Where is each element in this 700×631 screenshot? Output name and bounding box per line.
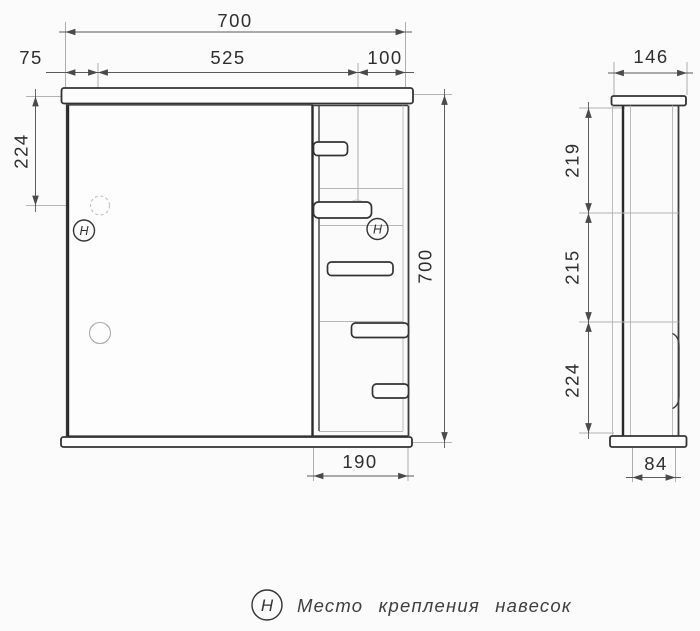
- top-panel: [62, 88, 414, 104]
- dim-label-middle-section: 215: [562, 249, 583, 284]
- side-view: 146 219 215 224 84: [562, 46, 694, 482]
- dim-label-total-width: 700: [217, 10, 252, 31]
- legend-hinge-symbol: Н: [261, 596, 274, 615]
- dim-label-shelf-bottom-width: 190: [342, 451, 377, 472]
- dim-label-door-width: 525: [210, 47, 245, 68]
- mirror-door: [67, 105, 313, 436]
- side-bottom-panel: [610, 436, 687, 447]
- bottom-panel: [61, 437, 412, 447]
- dim-label-shelf-width: 100: [367, 47, 402, 68]
- dim-label-hinge-offset: 224: [11, 133, 32, 168]
- dim-label-depth: 146: [633, 46, 668, 67]
- shelf-bracket: [352, 323, 409, 338]
- dim-label-bottom-section: 224: [562, 362, 583, 397]
- front-view: 700 75 525 100 224 700 190 Н: [11, 10, 453, 481]
- dim-label-top-section: 219: [562, 142, 583, 177]
- dim-label-left-offset: 75: [19, 47, 43, 68]
- shelf-bracket: [373, 384, 409, 398]
- cabinet-drawing-canvas: 700 75 525 100 224 700 190 Н: [0, 0, 700, 631]
- dim-label-total-height: 700: [415, 248, 436, 283]
- side-top-panel: [612, 96, 687, 106]
- legend-label: Место крепления навесок: [297, 595, 572, 616]
- hinge-marker-symbol: Н: [373, 223, 383, 237]
- shelf-bracket: [314, 202, 372, 218]
- hinge-marker-symbol: Н: [79, 224, 89, 238]
- shelf-bracket: [314, 142, 348, 156]
- technical-drawing-page: 700 75 525 100 224 700 190 Н: [0, 0, 700, 631]
- dim-label-body-depth: 84: [644, 453, 668, 474]
- towel-bar: [328, 262, 394, 276]
- legend: Н Место крепления навесок: [252, 590, 572, 620]
